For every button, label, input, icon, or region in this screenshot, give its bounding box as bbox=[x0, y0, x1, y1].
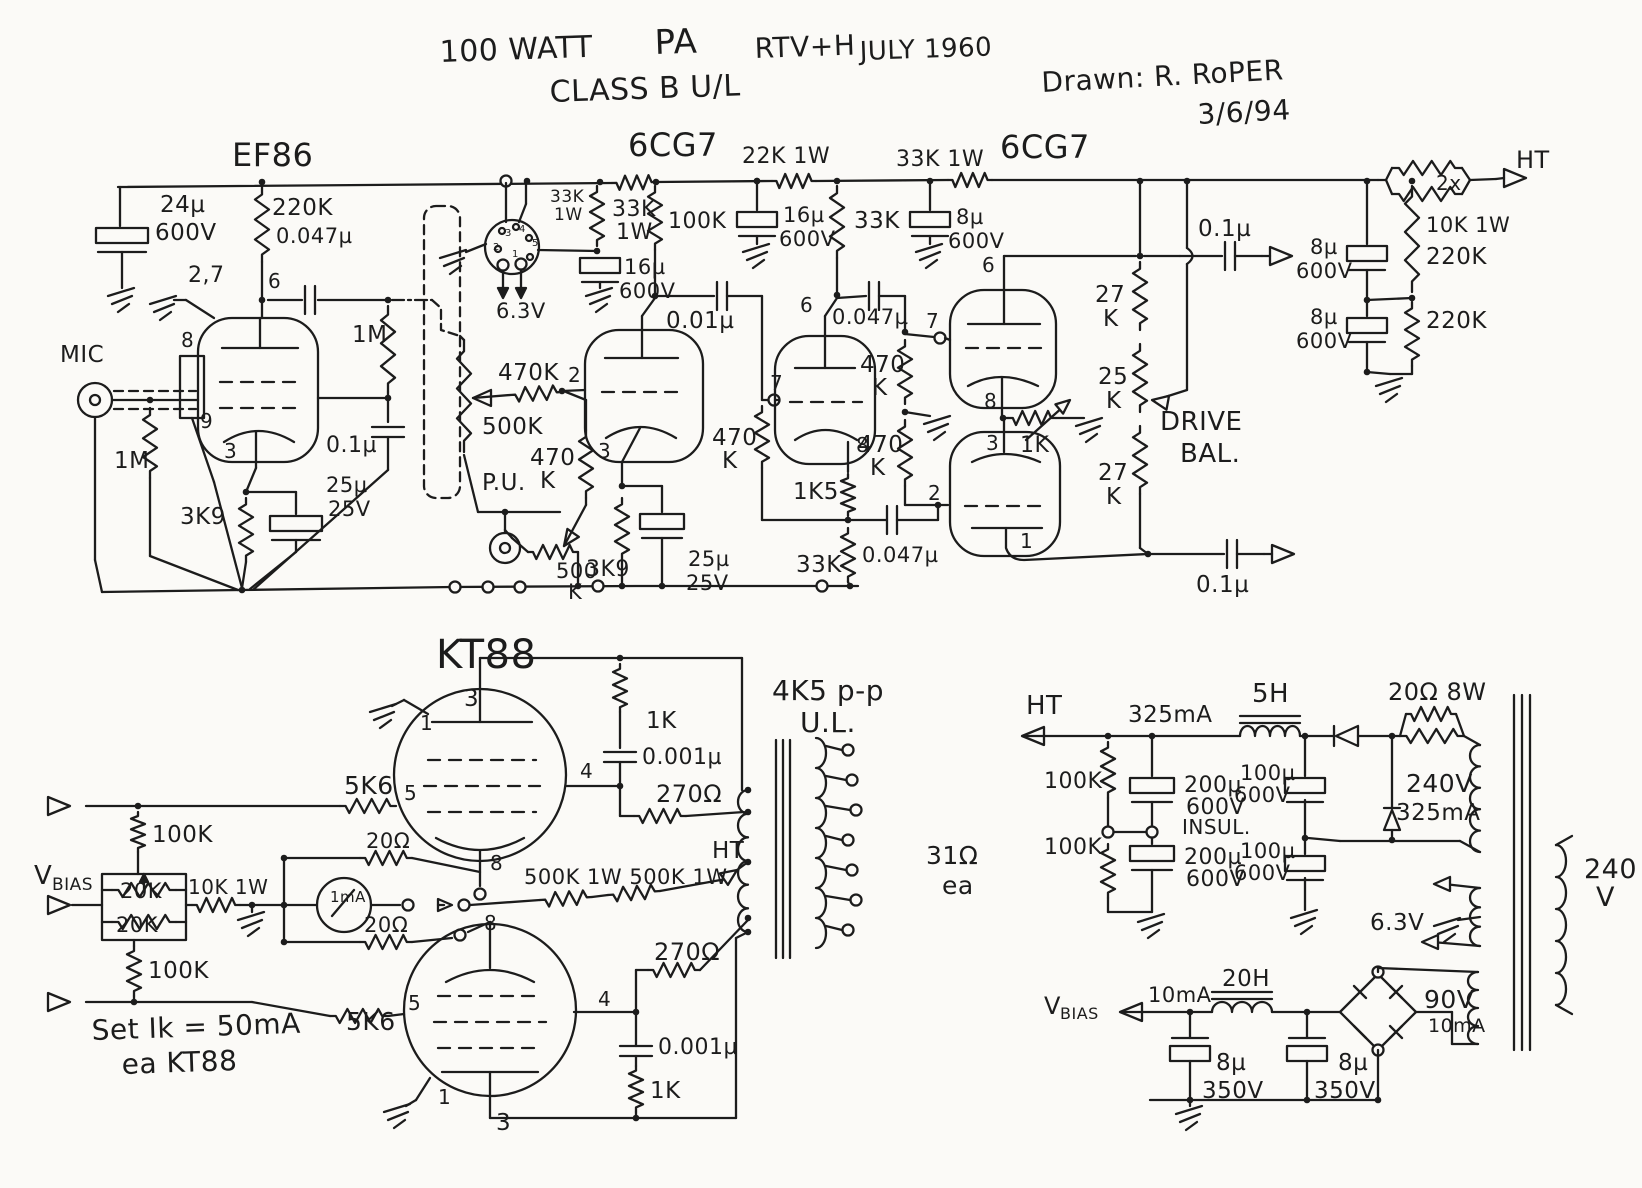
wire bbox=[470, 900, 540, 905]
inductor-coil bbox=[816, 738, 826, 948]
ground-icon bbox=[108, 288, 134, 312]
schematic-label: 6 bbox=[268, 269, 281, 293]
terminal-ring bbox=[843, 745, 854, 756]
schematic-label: 0.1µ bbox=[326, 433, 377, 458]
schematic-label: 1M bbox=[352, 322, 387, 348]
schematic-label: 20K bbox=[120, 879, 163, 903]
opt-imp: 4K5 p-p bbox=[772, 674, 884, 707]
credit-date: 3/6/94 bbox=[1197, 93, 1292, 131]
capacitor bbox=[737, 212, 777, 227]
schematic-label: 20Ω bbox=[366, 829, 410, 853]
schematic-label: 0.1µ bbox=[1196, 572, 1249, 598]
resistor bbox=[841, 528, 855, 582]
ground-icon bbox=[384, 1104, 410, 1128]
title-pa: PA bbox=[654, 22, 698, 63]
inductor-coil bbox=[1556, 845, 1566, 1005]
tube-kt88: KT88 bbox=[436, 632, 536, 678]
resistor bbox=[613, 664, 627, 712]
schematic-label: 8µ bbox=[1338, 1050, 1368, 1076]
resistor bbox=[615, 498, 629, 560]
wire bbox=[905, 412, 930, 416]
schematic-label: 25V bbox=[328, 497, 371, 521]
schematic-label: 25µ bbox=[688, 547, 730, 571]
schematic-label: 1K bbox=[1020, 433, 1049, 458]
junction-dot bbox=[1375, 1097, 1382, 1104]
schematic-label: 5 bbox=[404, 781, 417, 805]
schematic-label: 100K bbox=[152, 822, 213, 848]
wire bbox=[250, 552, 296, 589]
resistor bbox=[629, 1066, 643, 1112]
resistor bbox=[590, 186, 604, 246]
schematic-label: 31Ω bbox=[926, 841, 978, 870]
schematic-label: K bbox=[1103, 306, 1119, 332]
wire bbox=[826, 836, 842, 840]
ground-icon bbox=[370, 704, 396, 728]
wire bbox=[466, 244, 486, 252]
wire bbox=[1556, 836, 1572, 845]
schematic-label: 0.001µ bbox=[642, 745, 722, 770]
schematic-label: 600V bbox=[1234, 783, 1291, 807]
schematic-label: 8µ bbox=[1310, 235, 1338, 259]
schematic-label: 90V bbox=[1424, 985, 1474, 1014]
schematic-label: 0.01µ bbox=[666, 308, 734, 334]
resistor bbox=[612, 175, 656, 190]
schematic-label: 16µ bbox=[624, 255, 666, 279]
capacitor bbox=[640, 514, 684, 529]
capacitor bbox=[1130, 846, 1174, 861]
wire bbox=[1367, 298, 1412, 300]
vbias-left-2: BIAS bbox=[52, 875, 93, 895]
terminal-ring bbox=[843, 925, 854, 936]
schematic-label: 33K bbox=[612, 197, 656, 222]
schematic-canvas: 100 WATTPARTV+HJULY 1960CLASS B U/LDrawn… bbox=[0, 0, 1642, 1188]
bridge-rectifier bbox=[1340, 974, 1416, 1050]
schematic-label: 10mA bbox=[1428, 1015, 1486, 1037]
wire bbox=[592, 895, 608, 897]
schematic-label: 27 bbox=[1098, 460, 1128, 486]
schematic-label: K bbox=[1106, 388, 1122, 414]
schematic-label: 100K bbox=[148, 958, 209, 984]
schematic-label: 7 bbox=[770, 371, 783, 395]
bias-note-1: Set Ik = 50mA bbox=[91, 1007, 301, 1047]
wire bbox=[436, 838, 524, 850]
resistor bbox=[1133, 344, 1147, 412]
schematic-label: 3 bbox=[464, 686, 479, 712]
wire bbox=[102, 586, 858, 592]
ground-icon bbox=[1076, 418, 1102, 442]
schematic-label: 220K bbox=[1426, 244, 1487, 270]
schematic-label: 3 bbox=[224, 439, 237, 463]
inductor-coil bbox=[1212, 1002, 1272, 1012]
mic-jack bbox=[90, 395, 100, 405]
schematic-label: 220K bbox=[1426, 308, 1487, 334]
schematic-label: 470K bbox=[498, 360, 559, 386]
wire bbox=[1400, 714, 1406, 736]
wire bbox=[446, 970, 534, 982]
schematic-label: 7 bbox=[926, 309, 939, 333]
schematic-label: 325mA bbox=[1396, 800, 1481, 826]
schematic-label: 600V bbox=[155, 220, 217, 246]
schematic-label: 0.1µ bbox=[1198, 216, 1251, 242]
schematic-label: 2x bbox=[1436, 171, 1462, 195]
resistor bbox=[360, 851, 412, 865]
input-mic: MIC bbox=[60, 342, 104, 368]
wire bbox=[1354, 986, 1402, 1038]
schematic-label: 600V bbox=[779, 227, 836, 251]
wire bbox=[1378, 968, 1478, 972]
schematic-label: 240V bbox=[1406, 769, 1473, 798]
terminal-ring bbox=[527, 254, 533, 260]
terminal-ring bbox=[403, 900, 414, 911]
schematic-label: 20Ω bbox=[364, 913, 408, 937]
junction-dot bbox=[653, 179, 660, 186]
meter-1ma: 1mA bbox=[330, 888, 366, 906]
schematic-label: 0.047µ bbox=[832, 305, 908, 329]
inductor-coil bbox=[1470, 745, 1480, 852]
terminal-ring bbox=[498, 260, 509, 271]
terminal-ring bbox=[475, 889, 486, 900]
ground-icon bbox=[238, 912, 264, 936]
wire bbox=[1456, 714, 1464, 736]
wire bbox=[837, 296, 866, 298]
tube-ef86: EF86 bbox=[232, 136, 313, 174]
terminal-ring bbox=[516, 259, 527, 270]
schematic-label: 8µ bbox=[1216, 1050, 1246, 1076]
wire bbox=[412, 938, 452, 942]
inductor-coil bbox=[1240, 726, 1300, 736]
schematic-label: 5 bbox=[408, 991, 421, 1015]
schematic-label: 8 bbox=[181, 328, 194, 352]
arrow-icon bbox=[1434, 877, 1450, 891]
wire bbox=[519, 204, 526, 222]
schematic-label: 8 bbox=[484, 911, 497, 935]
capacitor bbox=[270, 516, 322, 531]
junction-dot bbox=[1409, 295, 1416, 302]
schematic-label: 1M bbox=[114, 448, 149, 474]
wire bbox=[562, 390, 585, 391]
resistor bbox=[192, 898, 240, 912]
wire bbox=[1462, 168, 1470, 180]
capacitor bbox=[1347, 318, 1387, 333]
resistor bbox=[1406, 707, 1456, 721]
schematic-label: 3K9 bbox=[586, 557, 630, 582]
schematic-label: K bbox=[540, 468, 556, 494]
wire bbox=[826, 866, 846, 870]
schematic-label: 600V bbox=[948, 229, 1005, 253]
schematic-label: ea bbox=[942, 871, 974, 900]
terminal-ring bbox=[1103, 827, 1114, 838]
junction-dot bbox=[147, 397, 154, 404]
wire bbox=[905, 334, 934, 337]
schematic-label: 5H bbox=[1252, 679, 1289, 709]
junction-dot bbox=[594, 248, 601, 255]
arrow-icon bbox=[516, 288, 526, 298]
capacitor bbox=[1170, 1046, 1210, 1061]
resistor bbox=[1405, 186, 1419, 292]
schematic-label: 100µ bbox=[1240, 839, 1295, 863]
terminal-ring bbox=[851, 895, 862, 906]
wire bbox=[186, 300, 214, 318]
ht-top: HT bbox=[1516, 146, 1550, 174]
junction-dot bbox=[745, 929, 752, 936]
schematic-label: 1 bbox=[512, 249, 519, 260]
schematic-label: K bbox=[722, 448, 738, 474]
title-watt: 100 WATT bbox=[439, 30, 593, 70]
schematic-label: K bbox=[568, 580, 583, 604]
schematic-label: 6 bbox=[982, 253, 995, 277]
schematic-label: 33K 1W bbox=[896, 147, 984, 172]
terminal-ring bbox=[817, 581, 828, 592]
schematic-label: 2 bbox=[568, 363, 581, 387]
ht-psu: HT bbox=[1026, 691, 1062, 721]
schematic-label: 220K bbox=[272, 195, 333, 221]
mains-1: 240 bbox=[1584, 854, 1637, 885]
junction-dot bbox=[597, 179, 604, 186]
schematic-label: 1K bbox=[650, 1078, 681, 1104]
pu-jack bbox=[490, 533, 520, 563]
resistor bbox=[948, 173, 992, 187]
capacitor bbox=[96, 228, 148, 243]
schematic-label: 8µ bbox=[956, 205, 984, 229]
schematic-label: 0.001µ bbox=[658, 1035, 738, 1060]
schematic-label: 0.047µ bbox=[862, 543, 938, 567]
junction-dot bbox=[1304, 1097, 1311, 1104]
resistor bbox=[381, 306, 395, 392]
schematic-label: 8 bbox=[984, 389, 997, 413]
schematic-label: 25 bbox=[1098, 364, 1128, 390]
schematic-label: 2 bbox=[928, 481, 941, 505]
wire bbox=[826, 926, 842, 930]
capacitor bbox=[1130, 778, 1174, 793]
wire bbox=[1308, 838, 1340, 841]
schematic-label: 325mA bbox=[1128, 702, 1213, 728]
ground-icon bbox=[743, 244, 769, 268]
wire bbox=[1386, 168, 1392, 180]
arrow-icon bbox=[48, 993, 70, 1011]
wire bbox=[416, 1078, 430, 1100]
credit: Drawn: R. RoPER bbox=[1041, 53, 1285, 99]
capacitor bbox=[910, 212, 950, 227]
resistor bbox=[841, 474, 855, 516]
arrow-icon bbox=[498, 288, 508, 298]
vbias-psu-2: BIAS bbox=[1060, 1004, 1099, 1023]
wire bbox=[1336, 726, 1358, 746]
junction-dot bbox=[745, 859, 752, 866]
shield-dash bbox=[432, 300, 460, 336]
schematic-label: K bbox=[1106, 484, 1122, 510]
arrow-icon bbox=[1422, 935, 1438, 949]
ground-icon bbox=[1376, 378, 1402, 402]
terminal-ring bbox=[1147, 827, 1158, 838]
wire bbox=[1462, 180, 1470, 194]
schematic-label: 25µ bbox=[326, 473, 368, 497]
schematic-label: 500K 1W 500K 1W bbox=[524, 865, 727, 889]
schematic-label: 600V bbox=[619, 279, 676, 303]
schematic-label: INSUL. bbox=[1182, 815, 1251, 839]
junction-dot bbox=[1105, 733, 1112, 740]
schematic-label: 16µ bbox=[783, 203, 825, 227]
schematic-label: 270Ω bbox=[654, 938, 720, 966]
schematic-label: 1 bbox=[420, 711, 433, 735]
title-class: CLASS B U/L bbox=[549, 68, 741, 110]
ground-icon bbox=[916, 244, 942, 268]
schematic-label: 6.3V bbox=[496, 299, 546, 323]
ground-icon bbox=[924, 416, 950, 440]
schematic-label: 24µ bbox=[160, 192, 205, 218]
resistor bbox=[1133, 262, 1147, 330]
wire bbox=[622, 428, 640, 462]
resistor bbox=[1133, 426, 1147, 494]
wire bbox=[464, 455, 478, 512]
schematic-label: 10K 1W bbox=[188, 875, 268, 899]
input-pu: P.U. bbox=[482, 470, 526, 496]
schematic-label: 3K9 bbox=[180, 504, 226, 530]
wire bbox=[246, 468, 256, 492]
schematic-label: 100K bbox=[1044, 835, 1102, 860]
terminal-ring bbox=[847, 775, 858, 786]
arrow-icon bbox=[1270, 247, 1292, 265]
schematic-label: 600V bbox=[1296, 259, 1353, 283]
junction-dot bbox=[834, 178, 841, 185]
schematic-label: 100K bbox=[1044, 769, 1102, 794]
schematic-label: 1K bbox=[646, 708, 677, 734]
title-date1: JULY 1960 bbox=[857, 32, 993, 67]
resistor bbox=[772, 174, 816, 188]
resistor bbox=[131, 812, 145, 852]
wire bbox=[826, 746, 842, 750]
schematic-label: 1 bbox=[438, 1085, 451, 1109]
schematic-label: 270Ω bbox=[656, 780, 722, 808]
wire bbox=[150, 556, 238, 590]
wire bbox=[118, 183, 612, 187]
schematic-label: 3 bbox=[598, 439, 611, 463]
schematic-label: 1W bbox=[554, 205, 583, 225]
arrow-icon bbox=[48, 896, 70, 914]
drive-bal-2: BAL. bbox=[1180, 439, 1240, 469]
junction-dot bbox=[385, 297, 392, 304]
resistor bbox=[510, 386, 562, 402]
schematic-label: 20H bbox=[1222, 966, 1270, 992]
wire bbox=[242, 562, 246, 588]
schematic-label: 4 bbox=[598, 987, 611, 1011]
junction-dot bbox=[745, 915, 752, 922]
mic-jack bbox=[78, 383, 112, 417]
terminal-ring bbox=[847, 865, 858, 876]
schematic-label: 33K bbox=[854, 208, 900, 234]
capacitor bbox=[580, 258, 620, 273]
wire bbox=[214, 482, 242, 588]
schematic-label: 5 bbox=[532, 238, 539, 249]
wire bbox=[566, 392, 586, 400]
schematic-label: 10mA bbox=[1148, 983, 1212, 1007]
resistor bbox=[1400, 729, 1464, 743]
terminal-ring bbox=[851, 805, 862, 816]
resistor bbox=[239, 498, 253, 562]
junction-dot bbox=[745, 787, 752, 794]
ground-icon bbox=[1291, 910, 1317, 934]
schematic-label: 4 bbox=[519, 224, 526, 235]
schematic-label: 33K bbox=[550, 187, 585, 207]
schematic-label: 10K 1W bbox=[1426, 213, 1510, 237]
arrow-icon bbox=[48, 797, 70, 815]
wire bbox=[1458, 917, 1480, 920]
resistor bbox=[1405, 302, 1419, 366]
schematic-label: K bbox=[872, 375, 888, 401]
wire bbox=[826, 806, 850, 810]
schematic-label: 27 bbox=[1095, 282, 1125, 308]
schematic-label: 33K bbox=[796, 552, 842, 578]
terminal-ring bbox=[515, 582, 526, 593]
resistor bbox=[1101, 844, 1115, 898]
wire bbox=[95, 560, 102, 592]
schematic-label: 600V bbox=[1234, 861, 1291, 885]
schematic-label: 22K 1W bbox=[742, 144, 830, 169]
drive-bal-1: DRIVE bbox=[1160, 407, 1242, 437]
schematic-label: 100K bbox=[668, 209, 726, 234]
terminal-ring bbox=[843, 835, 854, 846]
opt-ul: U.L. bbox=[800, 706, 856, 739]
schematic-label: 8µ bbox=[1310, 305, 1338, 329]
capacitor bbox=[1347, 246, 1387, 261]
schematic-label: 9 bbox=[200, 409, 213, 433]
ground-icon bbox=[586, 288, 612, 312]
wire bbox=[1556, 1005, 1572, 1014]
wire bbox=[1470, 179, 1496, 180]
wire bbox=[826, 776, 846, 780]
junction-dot bbox=[281, 855, 288, 862]
schematic-label: 100µ bbox=[1240, 761, 1295, 785]
wire bbox=[538, 250, 597, 251]
ground-icon bbox=[440, 250, 466, 274]
wire bbox=[606, 427, 676, 438]
schematic-label: 20Ω 8W bbox=[1388, 678, 1487, 706]
schematic-label: 2,7 bbox=[188, 263, 225, 288]
ground-icon bbox=[150, 296, 176, 320]
schematic-label: 6 bbox=[800, 293, 813, 317]
wire bbox=[1367, 372, 1390, 374]
junction-dot bbox=[745, 809, 752, 816]
resistor bbox=[360, 935, 412, 949]
schematic-label: 6.3V bbox=[1370, 910, 1424, 936]
terminal-ring bbox=[450, 582, 461, 593]
schematic-label: 0.047µ bbox=[276, 224, 352, 248]
schematic-label: 600V bbox=[1296, 329, 1353, 353]
schematic-label: 500K bbox=[482, 414, 543, 440]
ground-icon bbox=[1176, 1106, 1202, 1130]
resistor bbox=[540, 891, 592, 907]
title-rtvh: RTV+H bbox=[754, 29, 856, 65]
resistor bbox=[634, 809, 686, 823]
wire bbox=[826, 896, 850, 900]
junction-dot bbox=[1409, 178, 1416, 185]
junction-dot bbox=[135, 803, 142, 810]
wire bbox=[1464, 736, 1480, 745]
tube-envelope bbox=[198, 318, 318, 462]
wire bbox=[795, 430, 857, 440]
schematic-label: 20K bbox=[116, 913, 159, 937]
tube-6cg7-2: 6CG7 bbox=[1000, 128, 1090, 166]
arrow-icon bbox=[1272, 545, 1294, 563]
wire bbox=[1496, 178, 1504, 179]
schematic-label: 1W bbox=[616, 220, 653, 245]
schematic-label: 3 bbox=[496, 1110, 511, 1136]
schematic-label: 350V bbox=[1202, 1078, 1264, 1104]
wire bbox=[686, 812, 744, 816]
schematic-label: 350V bbox=[1314, 1078, 1376, 1104]
schematic-label: K bbox=[870, 455, 886, 481]
mains-2: V bbox=[1596, 882, 1615, 913]
schematic-label: 25V bbox=[686, 571, 729, 595]
